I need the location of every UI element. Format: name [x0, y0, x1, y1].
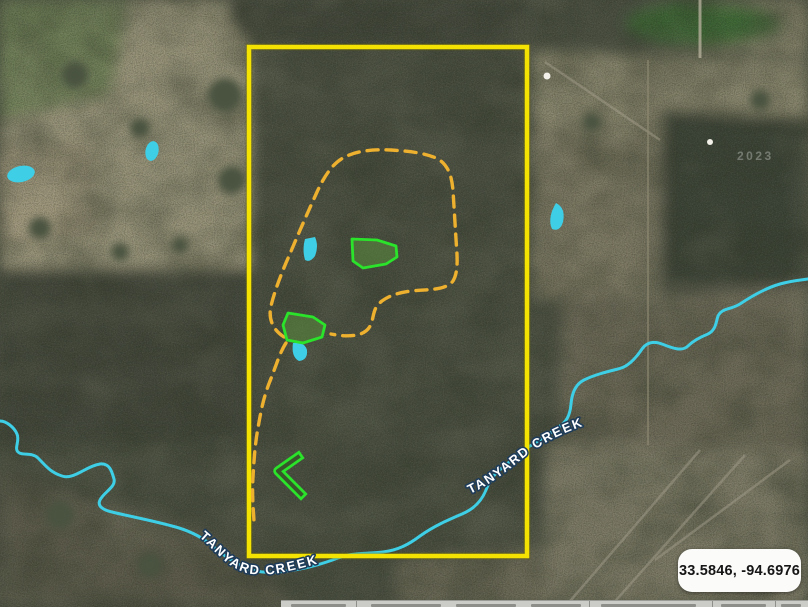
map-base [0, 0, 808, 607]
coordinate-readout: 33.5846, -94.6976 [678, 549, 801, 592]
building-dot [707, 139, 713, 145]
map-view[interactable]: TANYARD CREEK TANYARD CREEK 2023 33.5846… [0, 0, 808, 607]
building-dot [544, 73, 551, 80]
map-canvas: TANYARD CREEK TANYARD CREEK [0, 0, 808, 607]
table-column-divider [356, 601, 357, 607]
coordinate-readout-text: 33.5846, -94.6976 [679, 563, 800, 579]
table-column-divider [589, 601, 590, 607]
table-column-divider [712, 601, 713, 607]
table-column-divider [775, 601, 776, 607]
bottom-table-edge [281, 600, 808, 607]
imagery-watermark: 2023 [737, 149, 774, 163]
